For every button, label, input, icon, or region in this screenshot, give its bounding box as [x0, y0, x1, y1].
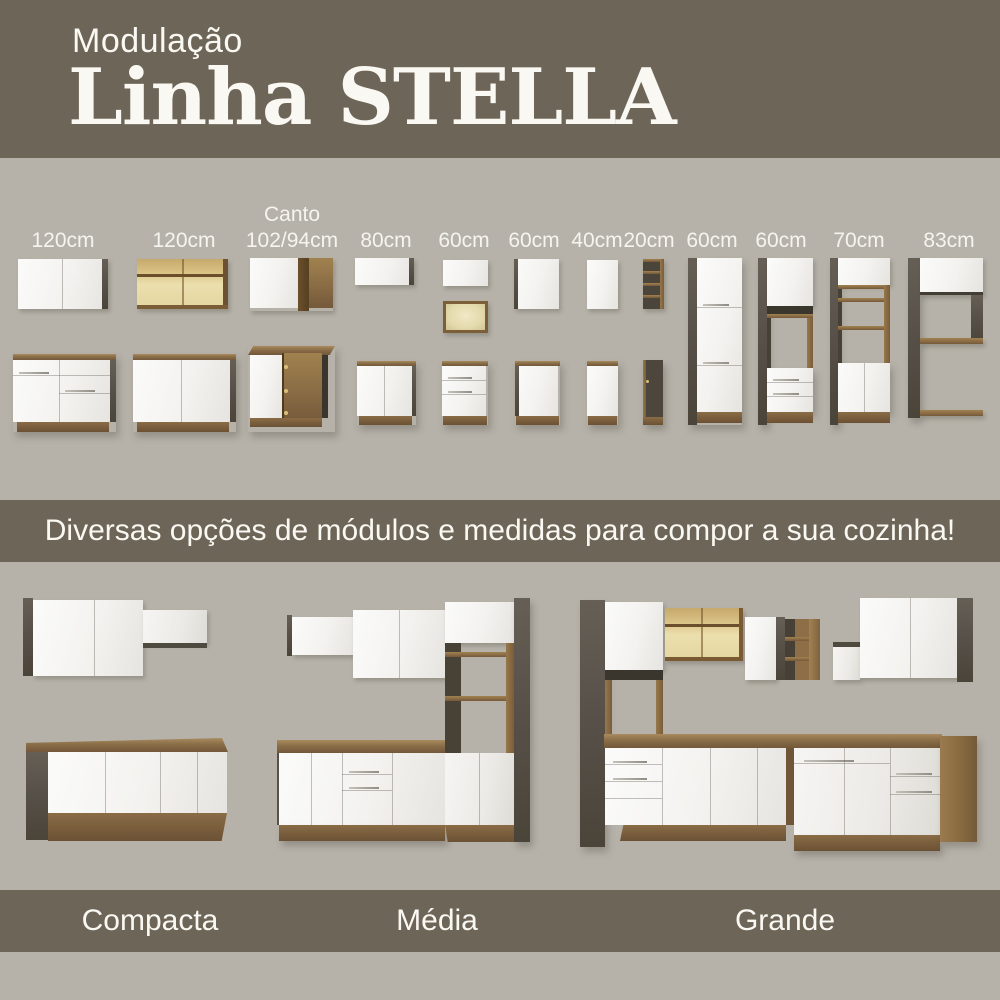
side-post [656, 680, 663, 737]
door-gap [62, 259, 63, 309]
handle [19, 372, 49, 374]
cabinet-side-panel [110, 360, 116, 422]
plinth-right [794, 835, 940, 851]
door-gap [384, 366, 385, 416]
cabinet-front [515, 366, 558, 416]
base-cabinet-20 [643, 360, 663, 425]
wall-cabinet-short [833, 647, 860, 680]
catalog-page: Modulação Linha STELLA 120cm 120cm Canto… [0, 0, 1000, 1000]
drawer-gap [767, 382, 813, 383]
base-cabinets-right [794, 748, 940, 835]
side-post [605, 680, 612, 737]
cabinet-side-panel [514, 259, 518, 309]
drawer-gap [13, 375, 110, 376]
door-gap [757, 748, 758, 825]
size-label-canto: Canto102/94cm [242, 202, 342, 254]
door-gap [710, 748, 711, 825]
hinge [646, 380, 649, 383]
plinth [17, 422, 109, 432]
drawer-gap [605, 764, 662, 765]
wall-cabinet-60-tall [514, 259, 559, 309]
side-post [884, 285, 890, 363]
cabinet-side-panel [908, 258, 920, 418]
header-band: Modulação Linha STELLA [0, 0, 1000, 158]
hinge [284, 365, 288, 369]
cabinet-side-panel [230, 360, 236, 422]
shelf [445, 696, 514, 701]
size-label-70: 70cm [809, 228, 909, 254]
drawer-gap [59, 393, 110, 394]
plinth [697, 412, 742, 423]
wall-cabinet-corner [250, 258, 333, 311]
shelf [643, 259, 660, 262]
shelf [785, 637, 809, 641]
base-cabinet-120-doors [133, 354, 236, 432]
fridge-surround-83 [908, 258, 983, 418]
shelf [920, 338, 983, 344]
tower-top-door [605, 602, 663, 670]
door-gap [197, 752, 198, 813]
door-gap [701, 608, 703, 657]
drawer-gap [442, 394, 486, 395]
door-gap [105, 752, 106, 813]
plinth [359, 416, 412, 425]
cabinet-side-panel [102, 259, 108, 309]
door-gap [697, 307, 742, 308]
size-label-83: 83cm [899, 228, 999, 254]
handle [349, 787, 379, 789]
tower-plinth [445, 825, 514, 842]
corner-post [298, 258, 309, 311]
wall-end-panel [957, 598, 973, 682]
cabinet-side-panel [409, 258, 414, 285]
cabinet-side-panel [412, 366, 416, 416]
wall-cabinet-40 [587, 260, 618, 309]
tall-pantry-60 [688, 258, 742, 425]
wall-cabinet-glass-led [137, 259, 228, 309]
wall-shelf-20 [643, 259, 664, 309]
wall-cabinet-120 [18, 259, 108, 309]
wall-cabinet-glass-led [665, 608, 743, 661]
wall-cabinet-short [143, 610, 207, 643]
top-cabinet [920, 258, 983, 295]
countertop-left [604, 734, 790, 748]
handle [349, 771, 379, 773]
cabinet-side-panel [776, 617, 785, 680]
base-side-panel [26, 752, 48, 840]
wall-cabinets-right [860, 598, 957, 678]
cabinet-door [250, 258, 298, 308]
wall-cabinets [33, 600, 143, 676]
side-post [807, 318, 813, 368]
hinge [284, 389, 288, 393]
base-cabinet-60-door [515, 361, 560, 425]
modules-section: 120cm 120cm Canto102/94cm 80cm 60cm 60cm… [0, 158, 1000, 500]
tower-side-panel [580, 600, 605, 847]
door-gap [94, 600, 95, 676]
door-gap [479, 753, 480, 825]
cabinet-front [13, 360, 110, 422]
cabinet-side-panel [223, 259, 228, 305]
handle [773, 393, 799, 395]
base-cabinet-40 [587, 361, 618, 425]
cabinet-edge [643, 360, 646, 417]
corner-side [309, 258, 333, 308]
corner-folding-door [282, 353, 322, 423]
shelf [838, 326, 890, 330]
shelf-side-panel [809, 619, 820, 680]
corner-open-shelves [785, 619, 809, 680]
footer-band: Compacta Média Grande [0, 890, 1000, 952]
drawer-gap [890, 794, 940, 795]
back-edge [767, 318, 771, 368]
door-gap [392, 753, 393, 825]
tower-base-doors [445, 753, 514, 825]
shelf-side [660, 259, 664, 309]
page-title: Linha STELLA [68, 52, 676, 143]
drawer-gap [794, 763, 890, 764]
plinth [588, 416, 617, 425]
shelf [643, 271, 660, 274]
handle [703, 362, 729, 364]
cabinet-front [442, 366, 486, 416]
drawer-gap [605, 798, 662, 799]
door-gap [59, 360, 60, 422]
handle [804, 760, 854, 762]
drawer-stack [767, 368, 813, 412]
oven-niche [767, 306, 813, 314]
corner-shadow [322, 355, 328, 418]
wall-cabinets-tall [353, 610, 445, 678]
right-panel [971, 295, 983, 343]
corner-post [786, 748, 794, 825]
drawer-gap [605, 781, 662, 782]
kitchen-label-compacta: Compacta [60, 890, 240, 952]
cabinet-front [133, 360, 230, 422]
drawer-gap [342, 790, 392, 791]
door-gap [662, 748, 663, 825]
handle [703, 304, 729, 306]
door-gap [181, 360, 182, 422]
base-cabinet-80 [357, 361, 416, 425]
countertop-right [790, 734, 942, 748]
door-gap [399, 610, 400, 678]
wall-side-panel [23, 598, 33, 676]
base-cabinets [279, 753, 445, 825]
open-niche [443, 301, 488, 333]
wall-cabinet [292, 617, 353, 655]
handle [613, 778, 647, 780]
cabinet-side-panel [515, 366, 519, 416]
door-gap [864, 363, 865, 412]
plinth [838, 412, 890, 423]
shelf-back [785, 619, 795, 680]
cabinet-underside [833, 642, 860, 647]
handle [896, 773, 932, 775]
kitchens-section [0, 562, 1000, 890]
cabinet-side-panel [830, 258, 838, 425]
handle [896, 791, 932, 793]
shelf [643, 283, 660, 286]
tower-top-cabinet [445, 602, 514, 643]
cabinet-front [587, 366, 618, 416]
cabinet-door [838, 258, 890, 285]
drawer-gap [442, 380, 486, 381]
handle [65, 390, 95, 392]
wall-cabinet-80 [355, 258, 414, 285]
plinth [279, 825, 445, 841]
shelf [643, 295, 660, 298]
back-edge [838, 285, 842, 363]
base-cabinet-120-drawers [13, 354, 116, 432]
base-cabinet-corner [248, 346, 335, 432]
tall-oven-tower-60 [758, 258, 813, 425]
side-post [506, 643, 514, 753]
door-gap [342, 753, 343, 825]
drawer-gap [767, 396, 813, 397]
cabinet-front [357, 366, 412, 416]
bottom-rail [920, 410, 983, 416]
shelf [838, 298, 890, 302]
door-gap [890, 748, 891, 835]
wall-cabinet-single [745, 617, 776, 680]
cabinet-front [697, 258, 742, 412]
kitchen-label-media: Média [347, 890, 527, 952]
handle [773, 379, 799, 381]
plinth [767, 412, 813, 423]
cabinet-side-panel [688, 258, 697, 425]
plinth [48, 813, 227, 841]
door-gap [160, 752, 161, 813]
door-gap [910, 598, 911, 678]
base-end-panel [940, 736, 977, 842]
cabinet-door [767, 258, 813, 306]
door-gap [697, 365, 742, 366]
shelf [785, 657, 809, 661]
tall-shelf-tower-70 [830, 258, 890, 425]
plinth [250, 418, 322, 427]
door-gap [182, 259, 184, 305]
plinth [443, 416, 487, 425]
drawer-gap [890, 776, 940, 777]
drawer-gap [342, 774, 392, 775]
handle [448, 391, 472, 393]
size-label-120-b: 120cm [134, 228, 234, 254]
base-cabinets-left [605, 748, 788, 825]
handle [448, 377, 472, 379]
door-gap [311, 753, 312, 825]
shelf [838, 285, 890, 289]
shelf [445, 652, 514, 657]
handle [613, 761, 647, 763]
plinth [516, 416, 559, 425]
cabinet-door [250, 355, 282, 418]
kitchen-label-grande: Grande [695, 890, 875, 952]
cabinet-doors [838, 363, 890, 412]
size-label-120-a: 120cm [13, 228, 113, 254]
tower-side-panel [514, 598, 530, 842]
oven-niche [605, 670, 663, 680]
plinth [137, 422, 229, 432]
banner-band: Diversas opções de módulos e medidas par… [0, 500, 1000, 562]
banner-text: Diversas opções de módulos e medidas par… [0, 500, 1000, 562]
countertop [26, 738, 228, 752]
cabinet-underside [143, 643, 207, 648]
hinge [284, 411, 288, 415]
door-gap [844, 748, 845, 835]
cabinet-side-panel [758, 258, 767, 425]
base-cabinet-60-drawers [442, 361, 488, 425]
plinth-left [620, 825, 786, 841]
wall-cabinet-60 [443, 260, 488, 286]
countertop [277, 740, 445, 753]
plinth [643, 417, 663, 425]
base-cabinets [48, 752, 227, 813]
